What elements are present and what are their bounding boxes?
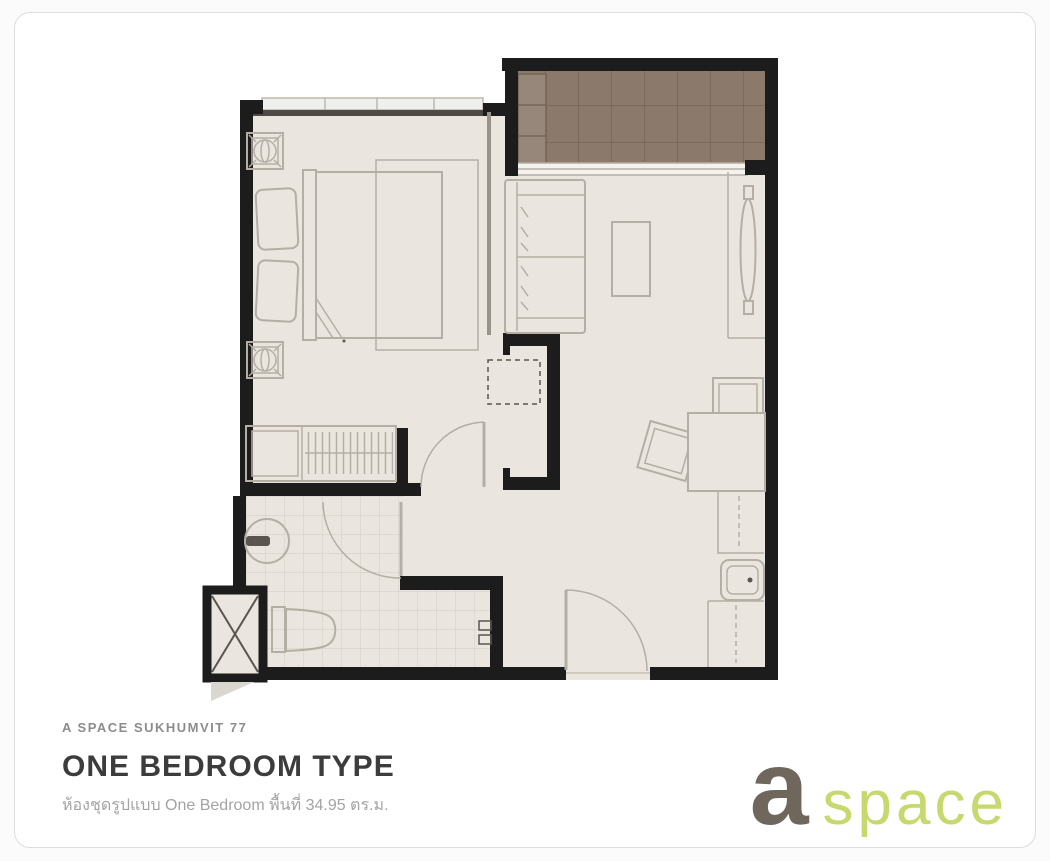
balcony-ac-unit bbox=[518, 74, 546, 166]
shaft-flap bbox=[211, 682, 254, 701]
brand-logo: a space bbox=[750, 746, 1008, 839]
bedroom-living-partition bbox=[487, 112, 491, 335]
caption-thai: ห้องชุดรูปแบบ One Bedroom พื้นที่ 34.95 … bbox=[62, 793, 395, 818]
footer: A SPACE SUKHUMVIT 77 ONE BEDROOM TYPE ห้… bbox=[62, 720, 395, 818]
basin-faucet bbox=[246, 536, 270, 546]
page-title: ONE BEDROOM TYPE bbox=[62, 750, 395, 784]
logo-word-space: space bbox=[823, 768, 1008, 839]
project-name: A SPACE SUKHUMVIT 77 bbox=[62, 720, 395, 735]
bedroom-window bbox=[253, 98, 483, 116]
balcony-sliding-door bbox=[515, 163, 747, 175]
service-shaft bbox=[207, 590, 263, 701]
dining-table bbox=[688, 413, 765, 491]
logo-mark-a: a bbox=[750, 746, 809, 831]
balcony bbox=[512, 68, 765, 175]
